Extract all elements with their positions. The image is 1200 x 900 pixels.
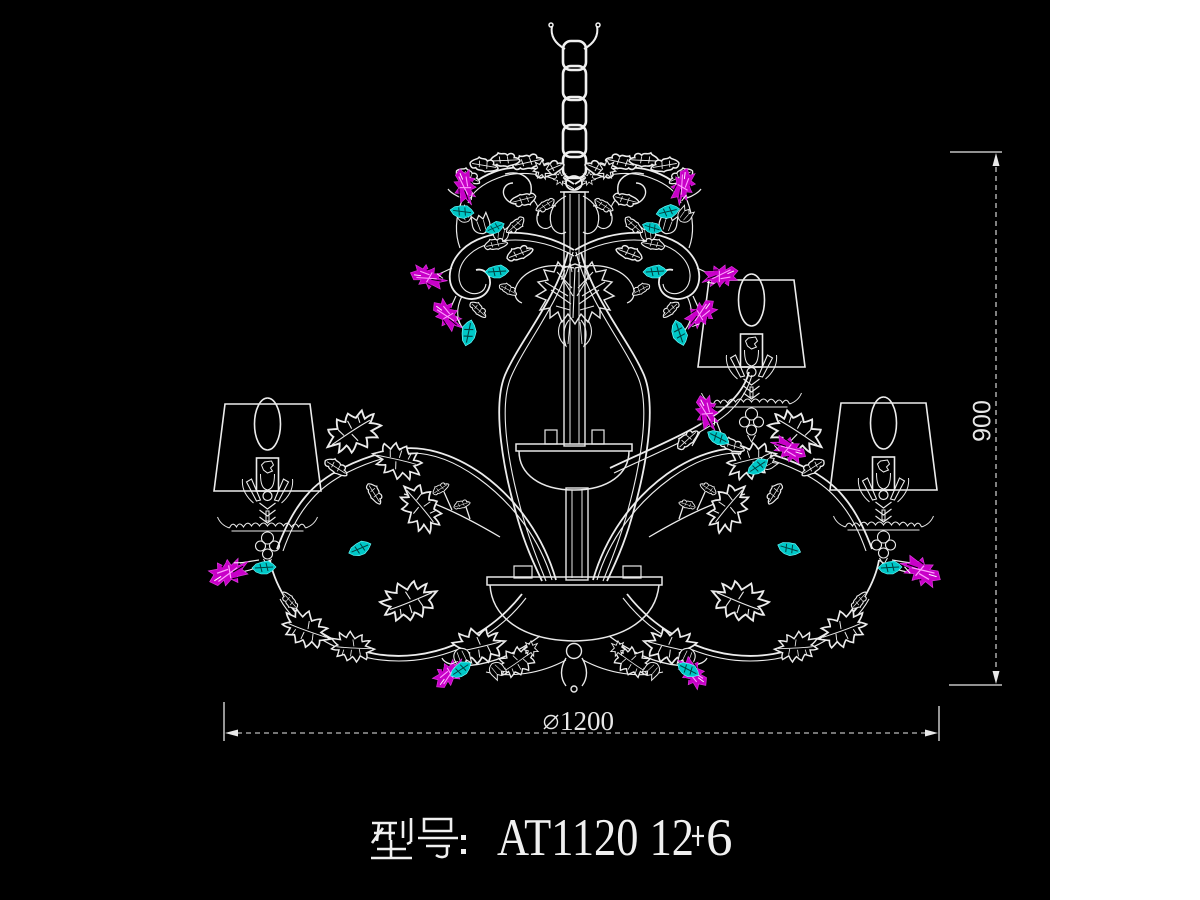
svg-text:AT1120 12: AT1120 12 [497,809,694,867]
svg-text:900: 900 [969,400,997,442]
svg-text:6: 6 [706,809,733,867]
svg-text:1200: 1200 [560,706,614,736]
